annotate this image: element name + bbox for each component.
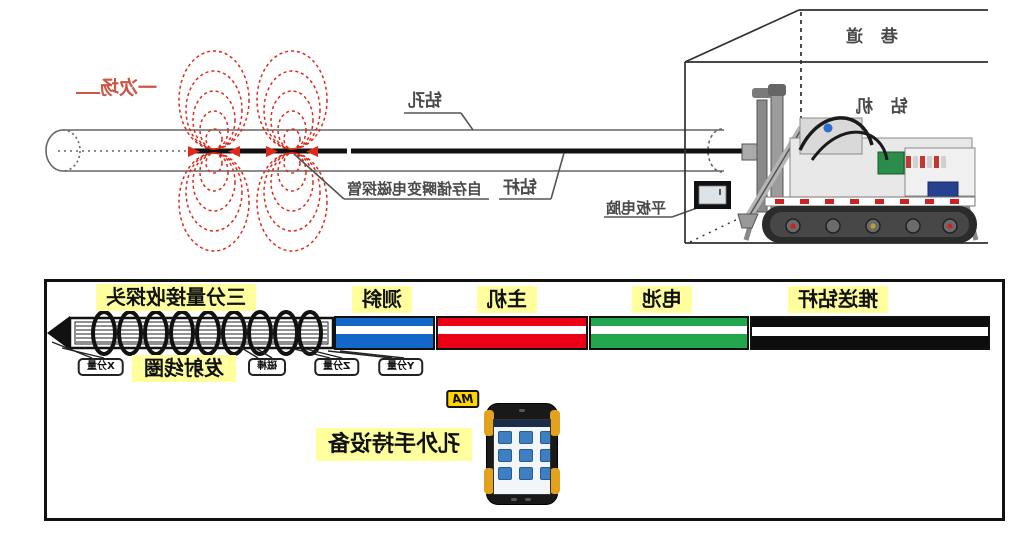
borehole-label: 钻孔 [408, 92, 442, 111]
x-component-tag: X分量 [78, 358, 124, 376]
device-button [525, 498, 531, 501]
app-icon [540, 449, 551, 462]
primary-field-label: 一次场 [100, 78, 157, 99]
device-statusbar [494, 420, 550, 427]
tablet-icon [694, 181, 731, 209]
inclinometer-header: 测斜 [352, 286, 412, 313]
tunnel-label: 巷 道 [840, 28, 898, 47]
handheld-device [486, 403, 558, 505]
probe-tube-label: 自存储瞬变电磁探管 [347, 181, 482, 198]
app-icon [519, 467, 533, 480]
drill-rod-label: 钻杆 [503, 179, 537, 198]
app-icon [498, 449, 512, 462]
transmit-coil-label: 发射线圈 [132, 355, 236, 382]
segment-push-rod [750, 316, 990, 350]
main-unit-header: 主机 [477, 286, 537, 313]
device-button [511, 498, 517, 501]
drill-rig-label: 钻 机 [850, 98, 908, 117]
device-bumper [550, 468, 560, 494]
battery-header: 电池 [632, 286, 692, 313]
y-component-tag: Y分量 [378, 358, 423, 376]
magnet-rod-tag: 磁棒 [248, 358, 286, 376]
device-screen [493, 419, 551, 495]
app-icon [519, 431, 533, 444]
app-icon [540, 431, 551, 444]
device-speaker [519, 409, 525, 412]
app-icon [519, 449, 533, 462]
segment-battery [589, 316, 749, 350]
ma-certification-badge: MA [446, 390, 479, 408]
app-icon [498, 467, 512, 480]
app-icon [540, 467, 551, 480]
probe-head-header: 三分量接收探头 [96, 284, 256, 311]
segment-main-unit [436, 316, 588, 350]
app-icon [498, 431, 512, 444]
diagram-stage: 一次场 钻孔 钻杆 自存储瞬变电磁探管 平板电脑 巷 道 钻 机 三分量接收探头… [0, 0, 1014, 534]
push-rod-header: 推送钻杆 [788, 286, 888, 313]
handheld-device-label: 孔外手持设备 [316, 428, 472, 461]
device-bumper [550, 410, 560, 436]
device-app-grid [498, 431, 546, 480]
segment-inclinometer [334, 316, 435, 350]
z-component-tag: Z分量 [314, 358, 359, 376]
tablet-label: 平板电脑 [606, 200, 666, 217]
drill-rod [193, 149, 756, 154]
